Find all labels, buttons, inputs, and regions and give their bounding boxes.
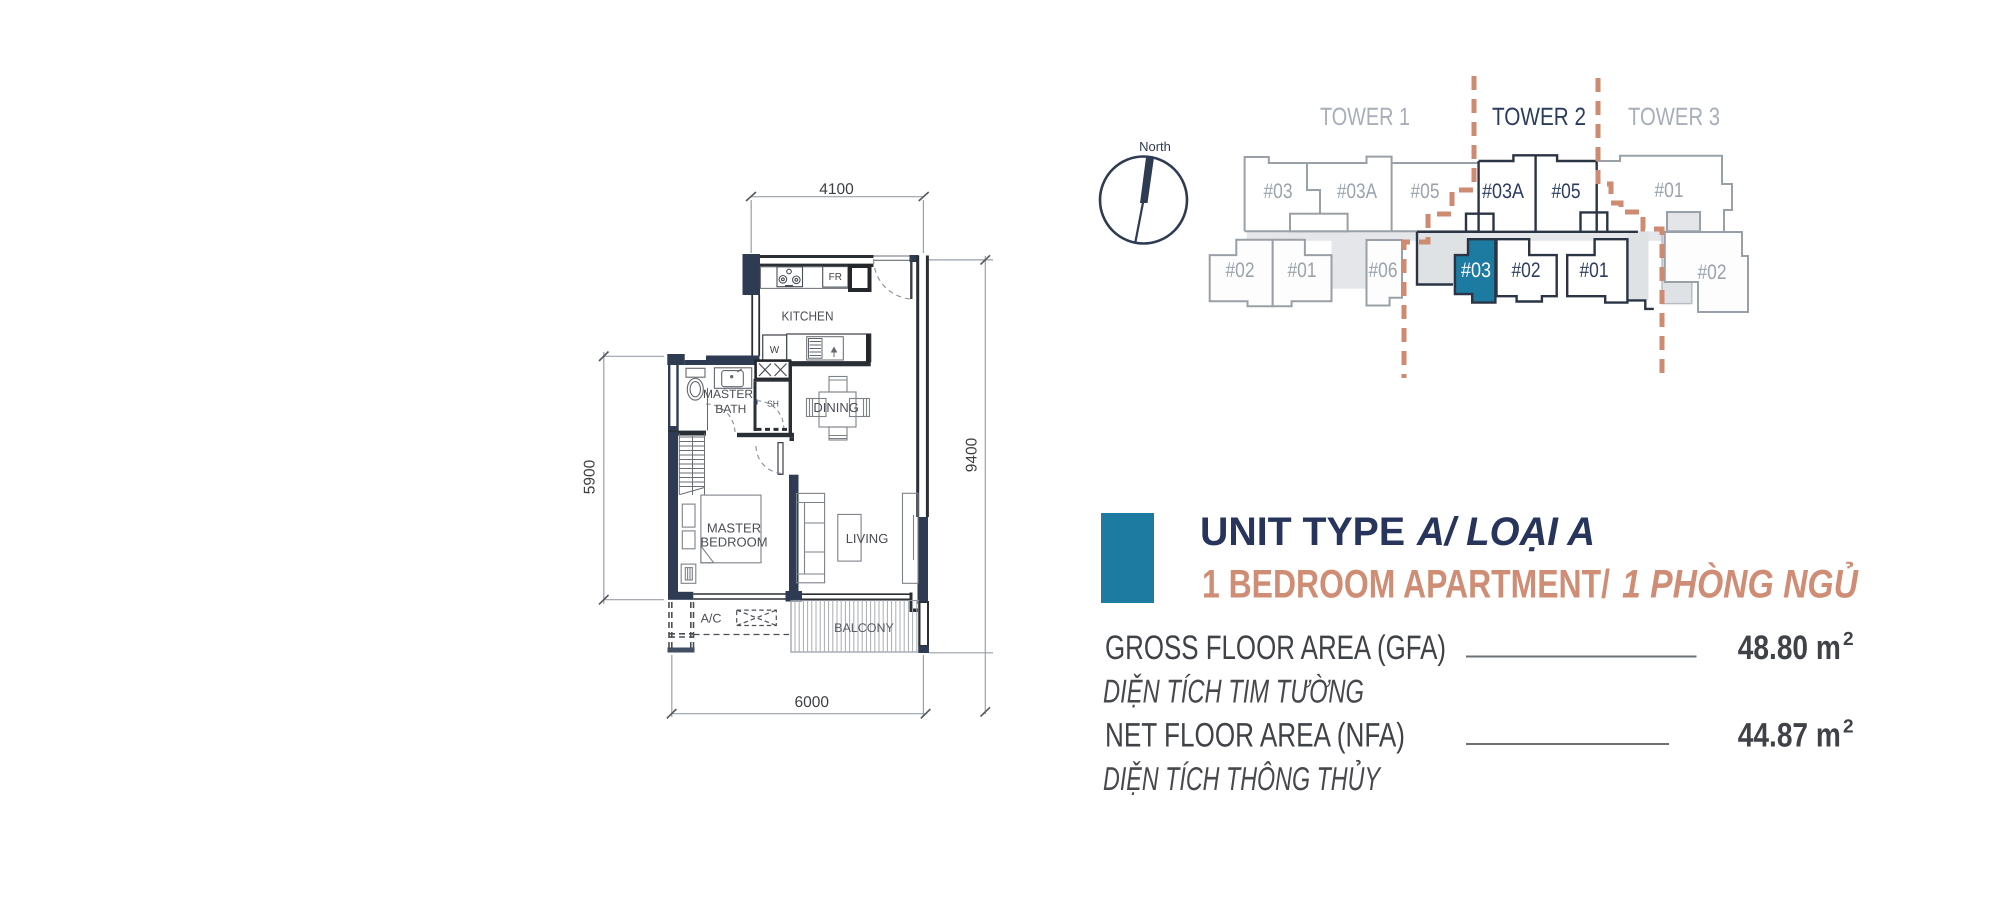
svg-text:North: North [1139,139,1171,154]
svg-text:UNIT TYPE: UNIT TYPE [1200,510,1405,554]
svg-text:6000: 6000 [795,694,830,711]
svg-text:48.80 m: 48.80 m [1738,629,1841,667]
svg-text:#06: #06 [1369,259,1398,282]
svg-text:1 PHÒNG NGỦ: 1 PHÒNG NGỦ [1622,562,1859,607]
svg-text:DIỆN TÍCH TIM TƯỜNG: DIỆN TÍCH TIM TƯỜNG [1103,673,1364,710]
svg-text:#02: #02 [1698,261,1727,284]
svg-text:LIVING: LIVING [846,531,889,546]
svg-text:KITCHEN: KITCHEN [782,309,834,324]
svg-text:2: 2 [1843,629,1854,650]
svg-text:MASTER: MASTER [703,387,753,401]
svg-text:#01: #01 [1288,259,1317,282]
svg-text:5900: 5900 [582,459,599,494]
svg-text:MASTER: MASTER [707,521,761,536]
svg-text:#03A: #03A [1482,180,1524,203]
svg-text:#02: #02 [1226,259,1255,282]
svg-text:#05: #05 [1552,180,1581,203]
svg-text:DINING: DINING [813,400,859,415]
svg-text:SH: SH [767,398,779,408]
svg-text:TOWER 1: TOWER 1 [1320,103,1410,131]
svg-text:2: 2 [1843,717,1854,738]
svg-text:9400: 9400 [964,437,981,472]
svg-text:#01: #01 [1580,259,1609,282]
svg-text:GROSS FLOOR AREA (GFA): GROSS FLOOR AREA (GFA) [1105,629,1446,667]
svg-text:TOWER 3: TOWER 3 [1628,103,1720,131]
svg-text:#02: #02 [1512,259,1541,282]
svg-text:#03A: #03A [1337,180,1377,203]
svg-text:#03: #03 [1461,259,1491,282]
svg-text:#01: #01 [1655,179,1684,202]
svg-text:W: W [770,345,780,356]
svg-text:BEDROOM: BEDROOM [700,535,767,550]
svg-text:#05: #05 [1411,180,1440,203]
svg-text:FR: FR [829,272,842,283]
svg-text:4100: 4100 [819,181,854,198]
svg-text:BALCONY: BALCONY [834,621,894,635]
svg-text:44.87 m: 44.87 m [1738,717,1841,755]
svg-text:A/ LOẠI A: A/ LOẠI A [1416,510,1595,554]
svg-text:DIỆN TÍCH THÔNG THỦY: DIỆN TÍCH THÔNG THỦY [1103,759,1381,797]
svg-text:A/C: A/C [701,612,722,626]
svg-text:NET FLOOR AREA (NFA): NET FLOOR AREA (NFA) [1105,717,1405,755]
svg-text:BATH: BATH [715,402,746,416]
svg-text:1 BEDROOM APARTMENT/: 1 BEDROOM APARTMENT/ [1202,563,1610,607]
svg-text:#03: #03 [1264,180,1293,203]
svg-text:TOWER 2: TOWER 2 [1492,103,1586,131]
